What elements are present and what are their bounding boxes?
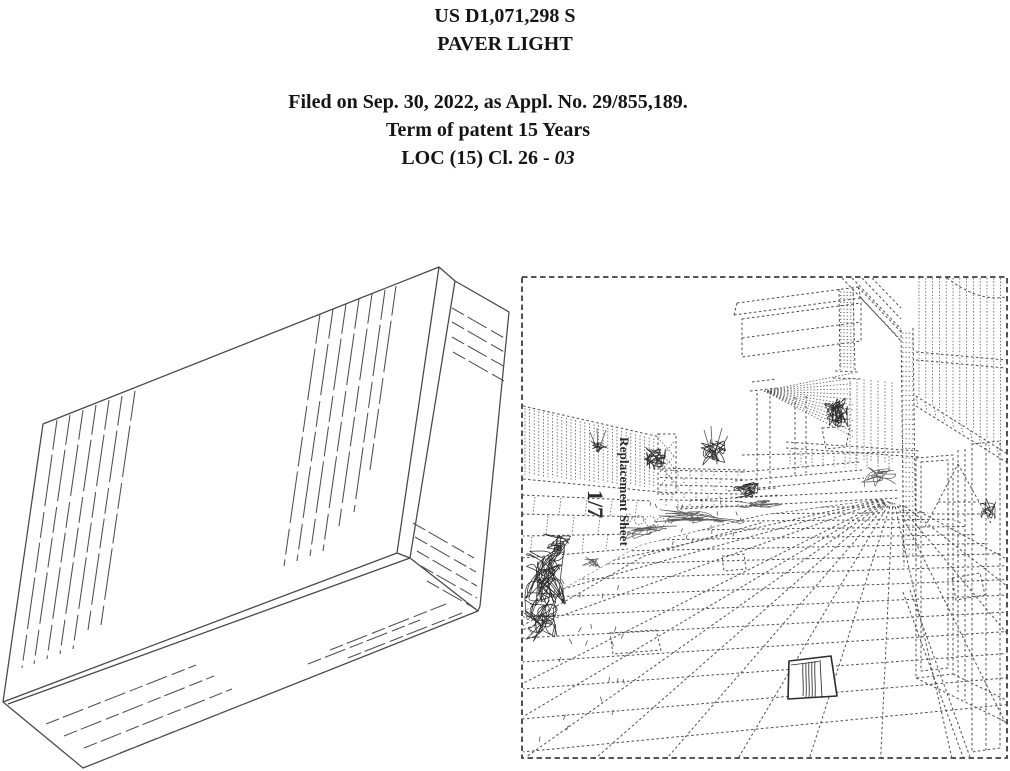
bottom-face-hatching xyxy=(46,604,462,753)
paver-floor xyxy=(512,497,1010,771)
porch-column xyxy=(750,379,778,497)
term-info: Term of patent 15 Years xyxy=(0,116,976,144)
patent-number: US D1,071,298 S xyxy=(0,2,1010,30)
loc-classification: LOC (15) Cl. 26 - 03 xyxy=(0,144,976,172)
stair-rail xyxy=(903,590,970,757)
loc-prefix: LOC (15) Cl. 26 - xyxy=(401,147,554,169)
sheet-number-label: 1/7 xyxy=(583,490,608,518)
patent-title: PAVER LIGHT xyxy=(0,30,1010,58)
front-face-hatching xyxy=(22,286,396,668)
walkway-edge xyxy=(522,499,882,626)
house-wall xyxy=(833,278,1008,757)
replacement-sheet-label: Replacement Sheet xyxy=(617,437,632,547)
document-header: US D1,071,298 S PAVER LIGHT Filed on Sep… xyxy=(0,2,1010,172)
garden-brick-wall xyxy=(658,468,745,507)
porch-railing xyxy=(786,442,920,457)
figure-environment-view: 1/7 Replacement Sheet xyxy=(512,268,1010,771)
paver-outline xyxy=(3,267,509,768)
vegetation xyxy=(524,398,996,741)
loc-class-value: 03 xyxy=(555,147,575,169)
claimed-paver-light xyxy=(788,656,837,699)
house-door xyxy=(916,455,953,678)
filing-info: Filed on Sep. 30, 2022, as Appl. No. 29/… xyxy=(0,88,976,116)
paver-light-drawing xyxy=(3,267,509,768)
figure-paver-light-perspective xyxy=(0,258,515,771)
eave-gutter xyxy=(916,396,1006,462)
filing-block: Filed on Sep. 30, 2022, as Appl. No. 29/… xyxy=(0,88,1010,172)
